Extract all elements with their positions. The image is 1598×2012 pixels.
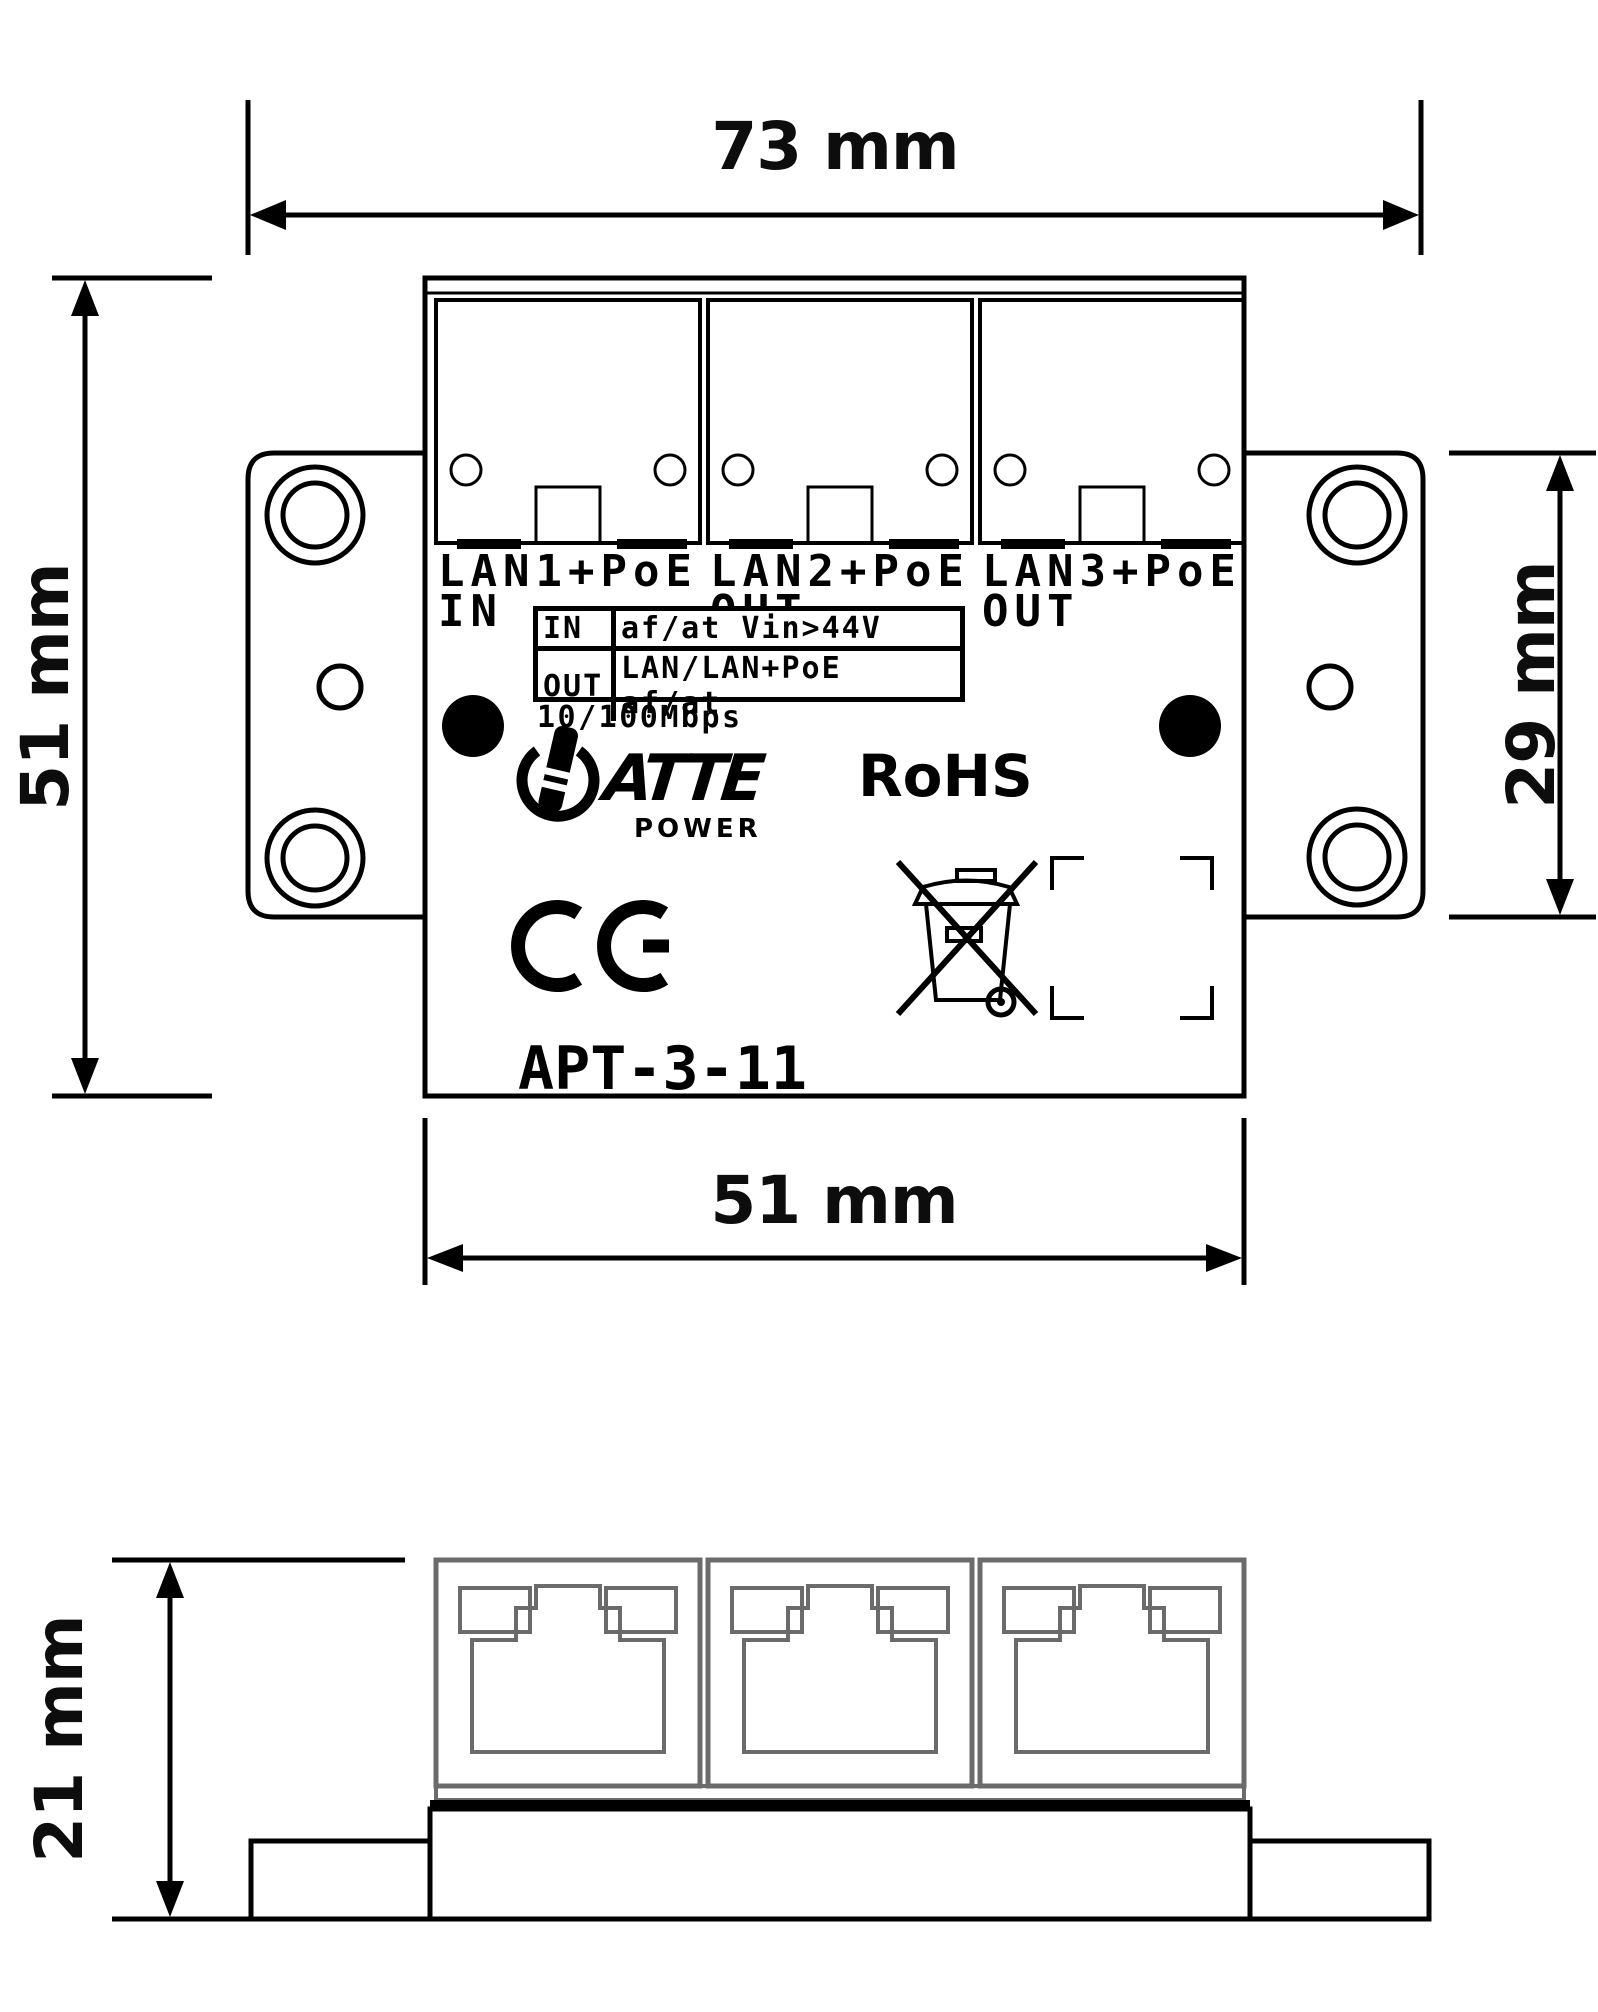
dim-label-total-width: 73 mm	[645, 112, 1025, 182]
rj45-jack3-frontview	[980, 1560, 1244, 1786]
rj45-jack1-frontview	[436, 1560, 700, 1786]
brand-sub-wordmark: POWER	[634, 814, 762, 844]
port1-direction: IN	[438, 592, 503, 632]
speed-label: 10/100Mbps	[537, 700, 743, 735]
technical-drawing-page: 73 mm 51 mm 29 mm 51 mm 21 mm LAN1+PoE I…	[0, 0, 1598, 2012]
right-screw-dot	[1159, 695, 1221, 757]
dim-label-bracket-height: 29 mm	[1497, 485, 1567, 885]
device-base-frontview	[251, 1786, 1429, 1919]
left-mounting-tab	[248, 453, 427, 917]
left-ear-frontview	[251, 1841, 430, 1919]
right-mounting-tab	[1244, 453, 1423, 917]
brand-wordmark: ATTE	[600, 742, 764, 816]
drawing-lineart	[0, 0, 1598, 2012]
rj45-jack2-frontview	[708, 1560, 972, 1786]
rohs-label: RoHS	[858, 742, 1033, 810]
right-ear-frontview	[1250, 1841, 1429, 1919]
spec-row1-value: af/at Vin>44V	[616, 611, 960, 651]
spec-row1-key: IN	[538, 611, 616, 651]
dim-label-side-height: 21 mm	[25, 1539, 95, 1939]
dim-label-body-height: 51 mm	[11, 487, 81, 887]
left-screw-dot	[442, 695, 504, 757]
dim-label-body-width: 51 mm	[634, 1166, 1034, 1236]
spec-table: IN af/at Vin>44V OUT LAN/LAN+PoE af/at	[533, 606, 965, 702]
model-label: APT-3-11	[518, 1034, 807, 1104]
port3-direction: OUT	[982, 592, 1079, 632]
